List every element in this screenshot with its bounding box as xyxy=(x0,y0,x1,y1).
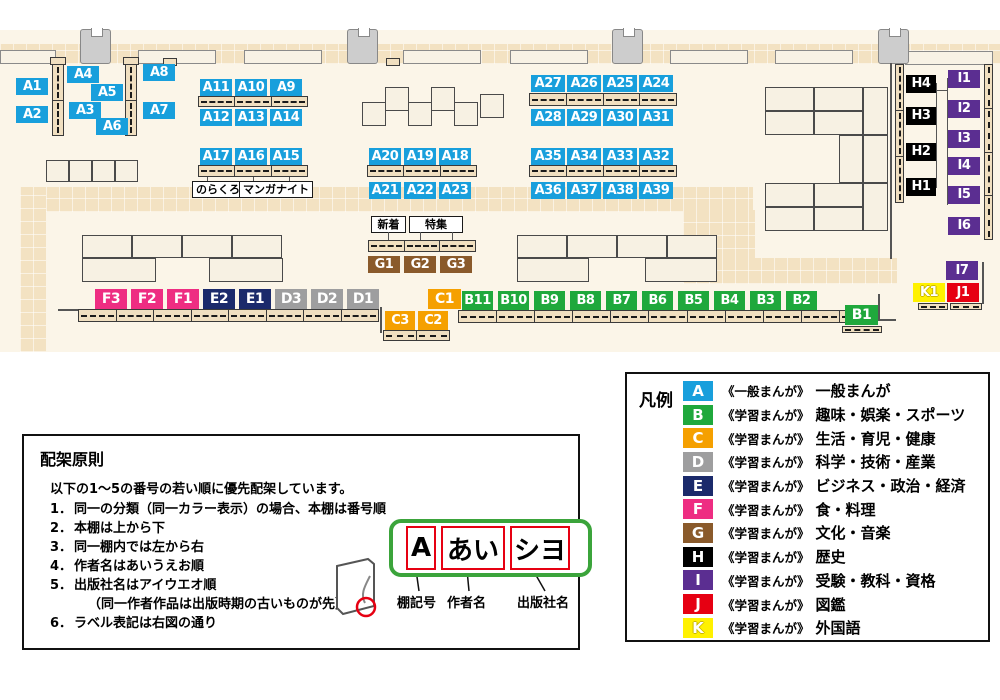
legend-item-G: G《学習まんが》文化・音楽 xyxy=(683,521,984,545)
shelf-label-group: K1 xyxy=(913,283,945,302)
shelf-block xyxy=(765,87,814,111)
shelf-label-group: I4 xyxy=(948,157,980,175)
legend-item-I: I《学習まんが》受験・教科・資格 xyxy=(683,569,984,593)
shelf-block xyxy=(517,258,589,282)
shelf-label-H3: H3 xyxy=(906,107,936,125)
shelf-label-G1: G1 xyxy=(368,256,400,273)
legend-tag: 《学習まんが》 xyxy=(722,476,810,495)
principles-item: 3．同一棚内では左から右 xyxy=(50,538,386,557)
wall-shelf xyxy=(510,50,588,64)
shelf-label-I6: I6 xyxy=(948,217,980,235)
shelf-label-group: A6 xyxy=(96,118,128,135)
legend-rows: A《一般まんが》一般まんがB《学習まんが》趣味・娯楽・スポーツC《学習まんが》生… xyxy=(683,379,984,640)
shelf-label-A34: A34 xyxy=(567,148,601,165)
shelf-label-H4: H4 xyxy=(906,75,936,93)
legend-category: 科学・技術・産業 xyxy=(816,451,936,472)
corner-label-feature: 特集 xyxy=(409,216,463,233)
shelf-label-A31: A31 xyxy=(639,109,673,126)
legend-item-E: E《学習まんが》ビジネス・政治・経済 xyxy=(683,474,984,498)
shelf-label-A33: A33 xyxy=(603,148,637,165)
principles-item: 1．同一の分類（同一カラー表示）の場合、本棚は番号順 xyxy=(50,500,386,519)
principles-title: 配架原則 xyxy=(40,446,104,470)
bookshelf xyxy=(918,303,948,310)
shelf-label-A27: A27 xyxy=(531,75,565,92)
shelf-label-I3: I3 xyxy=(948,130,980,148)
shelf-label-A25: A25 xyxy=(603,75,637,92)
legend-category: 外国語 xyxy=(816,617,861,638)
shelf-label-A4: A4 xyxy=(67,66,99,83)
shelf-block xyxy=(814,183,863,207)
shelf-label-A6: A6 xyxy=(96,118,128,135)
shelf-label-B4: B4 xyxy=(714,291,745,310)
shelf-label-group: I6 xyxy=(948,217,980,235)
shelf-label-group: F3F2F1E2E1D3D2D1 xyxy=(95,289,379,309)
corner-label-manganight: マンガナイト xyxy=(239,181,313,198)
shelf-label-B11: B11 xyxy=(462,291,493,310)
legend-chip-C: C xyxy=(683,428,713,448)
legend-chip-D: D xyxy=(683,452,713,472)
shelf-label-A18: A18 xyxy=(439,148,471,165)
shelf-block xyxy=(232,235,282,258)
shelf-block xyxy=(863,87,888,135)
legend-category: 趣味・娯楽・スポーツ xyxy=(816,404,966,425)
wall-shelf xyxy=(670,50,748,64)
shelf-label-F3: F3 xyxy=(95,289,127,309)
shelf-label-A5: A5 xyxy=(91,84,123,101)
shelf-label-H1: H1 xyxy=(906,178,936,196)
legend-tag: 《学習まんが》 xyxy=(722,500,810,519)
legend-chip-E: E xyxy=(683,476,713,496)
shelf-label-A36: A36 xyxy=(531,182,565,199)
legend-chip-J: J xyxy=(683,594,713,614)
shelf-label-group: I1 xyxy=(948,70,980,88)
bookshelf xyxy=(458,310,878,323)
shelf-block xyxy=(82,258,156,282)
legend-tag: 《学習まんが》 xyxy=(722,547,810,566)
legend-category: 図鑑 xyxy=(816,594,846,615)
shelf-label-group: A7 xyxy=(143,102,175,119)
bookshelf xyxy=(367,165,477,177)
shelf-label-A7: A7 xyxy=(143,102,175,119)
bookshelf xyxy=(198,96,308,107)
shelf-label-G2: G2 xyxy=(404,256,436,273)
shelf-label-A30: A30 xyxy=(603,109,637,126)
shelf-label-A26: A26 xyxy=(567,75,601,92)
principles-item-number: 4． xyxy=(50,557,74,576)
display-table xyxy=(92,160,115,182)
pillar xyxy=(878,29,909,64)
principles-item-number: 5． xyxy=(50,576,74,595)
floor-map-page: { "map": { "colors": {"A":"#189FDC","B":… xyxy=(0,0,1000,700)
corner-label-norakuro: のらくろ xyxy=(192,181,244,198)
principles-item-text: ラベル表記は右図の通り xyxy=(74,614,217,633)
wall-shelf xyxy=(905,51,993,65)
shelf-label-group: H2 xyxy=(906,143,936,161)
principles-item-text: （同一作者作品は出版時期の古いものが先） xyxy=(88,595,348,614)
bookshelf xyxy=(842,326,882,333)
shelf-block xyxy=(765,207,814,231)
shelf-label-group: H3 xyxy=(906,107,936,125)
shelf-label-E2: E2 xyxy=(203,289,235,309)
display-table xyxy=(480,94,504,118)
shelf-block xyxy=(567,235,617,258)
shelf-block xyxy=(814,87,863,111)
shelf-label-A2: A2 xyxy=(16,106,48,123)
shelf-label-group: A36A37A38A39 xyxy=(531,182,673,199)
shelf-label-J1: J1 xyxy=(947,283,979,302)
legend-chip-A: A xyxy=(683,381,713,401)
principles-item-number: 2． xyxy=(50,519,74,538)
shelf-label-A22: A22 xyxy=(404,182,436,199)
shelf-label-A11: A11 xyxy=(200,79,232,96)
legend-tag: 《学習まんが》 xyxy=(722,595,810,614)
shelf-label-B5: B5 xyxy=(678,291,709,310)
shelf-label-group: A17A16A15 xyxy=(200,148,302,165)
principles-item-text: 出版社名はアイウエオ順 xyxy=(74,576,216,595)
shelf-label-I4: I4 xyxy=(948,157,980,175)
shelf-label-A39: A39 xyxy=(639,182,673,199)
shelf-label-H2: H2 xyxy=(906,143,936,161)
pillar xyxy=(347,29,378,64)
legend-title: 凡例 xyxy=(639,386,673,411)
principles-item-text: 本棚は上から下 xyxy=(74,519,165,538)
legend-chip-F: F xyxy=(683,499,713,519)
shelf-label-D2: D2 xyxy=(311,289,343,309)
shelf-label-A38: A38 xyxy=(603,182,637,199)
shelf-label-B8: B8 xyxy=(570,291,601,310)
legend-item-B: B《学習まんが》趣味・娯楽・スポーツ xyxy=(683,403,984,427)
wall-shelf xyxy=(0,50,56,64)
shelf-label-group: A12A13A14 xyxy=(200,109,302,126)
shelf-label-B7: B7 xyxy=(606,291,637,310)
caption-publisher: 出版社名 xyxy=(517,592,569,611)
walkway-left xyxy=(20,187,46,352)
display-table xyxy=(431,87,455,111)
shelf-label-I2: I2 xyxy=(948,100,980,118)
shelf-label-B3: B3 xyxy=(750,291,781,310)
bookshelf xyxy=(78,309,379,322)
shelf-label-B2: B2 xyxy=(786,291,817,310)
principles-item-text: 同一棚内では左から右 xyxy=(74,538,204,557)
legend-tag: 《学習まんが》 xyxy=(722,429,810,448)
principles-item: 5．出版社名はアイウエオ順 xyxy=(50,576,386,595)
legend-tag: 《学習まんが》 xyxy=(722,405,810,424)
shelf-label-A23: A23 xyxy=(439,182,471,199)
spine-label-shelf-code: A xyxy=(406,526,436,570)
shelf-label-A24: A24 xyxy=(639,75,673,92)
shelf-label-group: C3C2 xyxy=(385,311,448,330)
shelf-label-group: A2 xyxy=(16,106,48,123)
legend-category: 文化・音楽 xyxy=(816,522,891,543)
shelf-label-D3: D3 xyxy=(275,289,307,309)
legend-item-F: F《学習まんが》食・料理 xyxy=(683,497,984,521)
shelf-label-A15: A15 xyxy=(270,148,302,165)
wall-shelf xyxy=(775,50,853,64)
shelf-label-I1: I1 xyxy=(948,70,980,88)
legend-tag: 《学習まんが》 xyxy=(722,452,810,471)
shelf-label-group: A20A19A18 xyxy=(369,148,471,165)
corner-label-new: 新着 xyxy=(371,216,406,233)
shelf-end-cap xyxy=(386,58,400,66)
shelf-label-group: A35A34A33A32 xyxy=(531,148,673,165)
shelf-block xyxy=(667,235,717,258)
shelf-label-A3: A3 xyxy=(69,102,101,119)
shelf-block xyxy=(814,207,863,231)
display-table xyxy=(362,102,386,126)
shelf-label-K1: K1 xyxy=(913,283,945,302)
principles-item: 4．作者名はあいうえお順 xyxy=(50,557,386,576)
shelf-label-F2: F2 xyxy=(131,289,163,309)
shelf-label-A1: A1 xyxy=(16,78,48,95)
shelf-block xyxy=(863,183,888,231)
shelf-block xyxy=(645,258,717,282)
legend-category: 歴史 xyxy=(816,546,846,567)
shelf-block xyxy=(839,135,863,183)
display-table xyxy=(46,160,69,182)
bookshelf xyxy=(950,303,982,310)
wall-shelf xyxy=(138,50,216,64)
shelf-label-I5: I5 xyxy=(948,186,980,204)
shelf-label-group: I5 xyxy=(948,186,980,204)
shelf-label-A10: A10 xyxy=(235,79,267,96)
legend-item-K: K《学習まんが》外国語 xyxy=(683,616,984,640)
shelf-label-group: B11B10B9B8B7B6B5B4B3B2 xyxy=(462,291,817,310)
legend-tag: 《学習まんが》 xyxy=(722,571,810,590)
legend-chip-K: K xyxy=(683,618,713,638)
bookshelf xyxy=(529,93,677,106)
legend-chip-H: H xyxy=(683,547,713,567)
display-table xyxy=(454,102,478,126)
principles-item: 6．ラベル表記は右図の通り xyxy=(50,614,386,633)
legend-category: 一般まんが xyxy=(816,380,891,401)
shelf-label-C1: C1 xyxy=(428,289,461,309)
shelf-label-C3: C3 xyxy=(385,311,415,330)
spine-label-publisher: シヨ xyxy=(510,526,570,570)
principles-item: 2．本棚は上から下 xyxy=(50,519,386,538)
shelf-label-B1: B1 xyxy=(845,305,878,325)
shelf-label-A20: A20 xyxy=(369,148,401,165)
bookshelf-vertical xyxy=(52,64,64,136)
principles-item-number: 1． xyxy=(50,500,74,519)
shelf-label-group: I7 xyxy=(946,261,978,280)
shelf-label-group: I2 xyxy=(948,100,980,118)
legend-item-D: D《学習まんが》科学・技術・産業 xyxy=(683,450,984,474)
shelf-label-group: C1 xyxy=(428,289,461,309)
principles-item-number xyxy=(64,595,88,614)
shelf-label-A32: A32 xyxy=(639,148,673,165)
shelf-label-group: J1 xyxy=(947,283,979,302)
shelf-label-A35: A35 xyxy=(531,148,565,165)
shelf-label-group: H4 xyxy=(906,75,936,93)
shelf-label-F1: F1 xyxy=(167,289,199,309)
shelf-label-E1: E1 xyxy=(239,289,271,309)
shelf-block xyxy=(132,235,182,258)
display-table xyxy=(115,160,138,182)
bookshelf-vertical xyxy=(984,64,993,240)
legend-category: 食・料理 xyxy=(816,499,876,520)
shelf-label-A28: A28 xyxy=(531,109,565,126)
shelf-label-group: A28A29A30A31 xyxy=(531,109,673,126)
shelf-block xyxy=(182,235,232,258)
legend-item-J: J《学習まんが》図鑑 xyxy=(683,592,984,616)
shelf-label-group: A3 xyxy=(69,102,101,119)
display-table xyxy=(408,102,432,126)
shelf-label-I7: I7 xyxy=(946,261,978,280)
pillar xyxy=(80,29,111,64)
bookshelf xyxy=(198,165,308,177)
shelf-label-A13: A13 xyxy=(235,109,267,126)
shelf-block xyxy=(617,235,667,258)
legend-category: ビジネス・政治・経済 xyxy=(816,475,966,496)
display-table xyxy=(385,87,409,111)
caption-author: 作者名 xyxy=(447,592,486,611)
principles-item-text: 同一の分類（同一カラー表示）の場合、本棚は番号順 xyxy=(74,500,386,519)
shelf-label-A17: A17 xyxy=(200,148,232,165)
principles-panel: 配架原則 以下の1～5の番号の若い順に優先配架しています。 1．同一の分類（同一… xyxy=(22,434,580,650)
shelf-block xyxy=(765,183,814,207)
spine-label-author: あい xyxy=(441,526,505,570)
shelf-label-group: G1G2G3 xyxy=(368,256,472,273)
shelf-label-B6: B6 xyxy=(642,291,673,310)
shelf-label-B10: B10 xyxy=(498,291,529,310)
shelf-block xyxy=(209,258,283,282)
shelf-block xyxy=(82,235,132,258)
shelf-label-group: I3 xyxy=(948,130,980,148)
shelf-label-group: A27A26A25A24 xyxy=(531,75,673,92)
shelf-label-A8: A8 xyxy=(143,64,175,81)
floor-map: A1 A2 A4 A5 A3 A6 A8 A7 A11A10A9 A12A13A… xyxy=(0,0,1000,365)
principles-list: 1．同一の分類（同一カラー表示）の場合、本棚は番号順2．本棚は上から下3．同一棚… xyxy=(50,500,386,633)
spine-label-example: A あい シヨ xyxy=(389,519,592,577)
shelf-label-B9: B9 xyxy=(534,291,565,310)
legend-item-A: A《一般まんが》一般まんが xyxy=(683,379,984,403)
shelf-label-D1: D1 xyxy=(347,289,379,309)
shelf-block xyxy=(814,111,863,135)
shelf-block xyxy=(765,111,814,135)
principles-item-number: 3． xyxy=(50,538,74,557)
shelf-label-group: A8 xyxy=(143,64,175,81)
shelf-label-A14: A14 xyxy=(270,109,302,126)
legend-chip-B: B xyxy=(683,405,713,425)
shelf-label-G3: G3 xyxy=(440,256,472,273)
legend-panel: 凡例 A《一般まんが》一般まんがB《学習まんが》趣味・娯楽・スポーツC《学習まん… xyxy=(625,372,990,642)
shelf-label-A9: A9 xyxy=(270,79,302,96)
shelf-label-group: A21A22A23 xyxy=(369,182,471,199)
shelf-label-A29: A29 xyxy=(567,109,601,126)
caption-shelf-code: 棚記号 xyxy=(397,592,436,611)
principles-item-number: 6． xyxy=(50,614,74,633)
principles-item-text: 作者名はあいうえお順 xyxy=(74,557,204,576)
bookshelf xyxy=(368,240,476,252)
legend-category: 受験・教科・資格 xyxy=(816,570,936,591)
legend-item-C: C《学習まんが》生活・育児・健康 xyxy=(683,426,984,450)
shelf-label-A16: A16 xyxy=(235,148,267,165)
bookshelf-vertical xyxy=(895,64,904,203)
bookshelf xyxy=(529,165,677,177)
shelf-block xyxy=(517,235,567,258)
pillar xyxy=(612,29,643,64)
legend-tag: 《一般まんが》 xyxy=(722,381,810,400)
shelf-label-A19: A19 xyxy=(404,148,436,165)
shelf-label-A21: A21 xyxy=(369,182,401,199)
bookshelf xyxy=(383,330,450,341)
legend-tag: 《学習まんが》 xyxy=(722,618,810,637)
shelf-label-A37: A37 xyxy=(567,182,601,199)
legend-tag: 《学習まんが》 xyxy=(722,523,810,542)
shelf-label-group: B1 xyxy=(845,305,878,325)
shelf-block xyxy=(863,135,888,183)
shelf-label-group: A11A10A9 xyxy=(200,79,302,96)
principles-item: （同一作者作品は出版時期の古いものが先） xyxy=(50,595,386,614)
wall-shelf xyxy=(244,50,322,64)
shelf-label-group: A1 xyxy=(16,78,48,95)
legend-item-H: H《学習まんが》歴史 xyxy=(683,545,984,569)
legend-category: 生活・育児・健康 xyxy=(816,428,936,449)
legend-chip-G: G xyxy=(683,523,713,543)
shelf-label-group: H1 xyxy=(906,178,936,196)
legend-chip-I: I xyxy=(683,570,713,590)
wall-shelf xyxy=(403,50,481,64)
shelf-label-C2: C2 xyxy=(418,311,448,330)
shelf-label-group: A5 xyxy=(91,84,123,101)
display-table xyxy=(69,160,92,182)
shelf-label-group: A4 xyxy=(67,66,99,83)
shelf-label-A12: A12 xyxy=(200,109,232,126)
principles-intro: 以下の1～5の番号の若い順に優先配架しています。 xyxy=(50,478,352,497)
